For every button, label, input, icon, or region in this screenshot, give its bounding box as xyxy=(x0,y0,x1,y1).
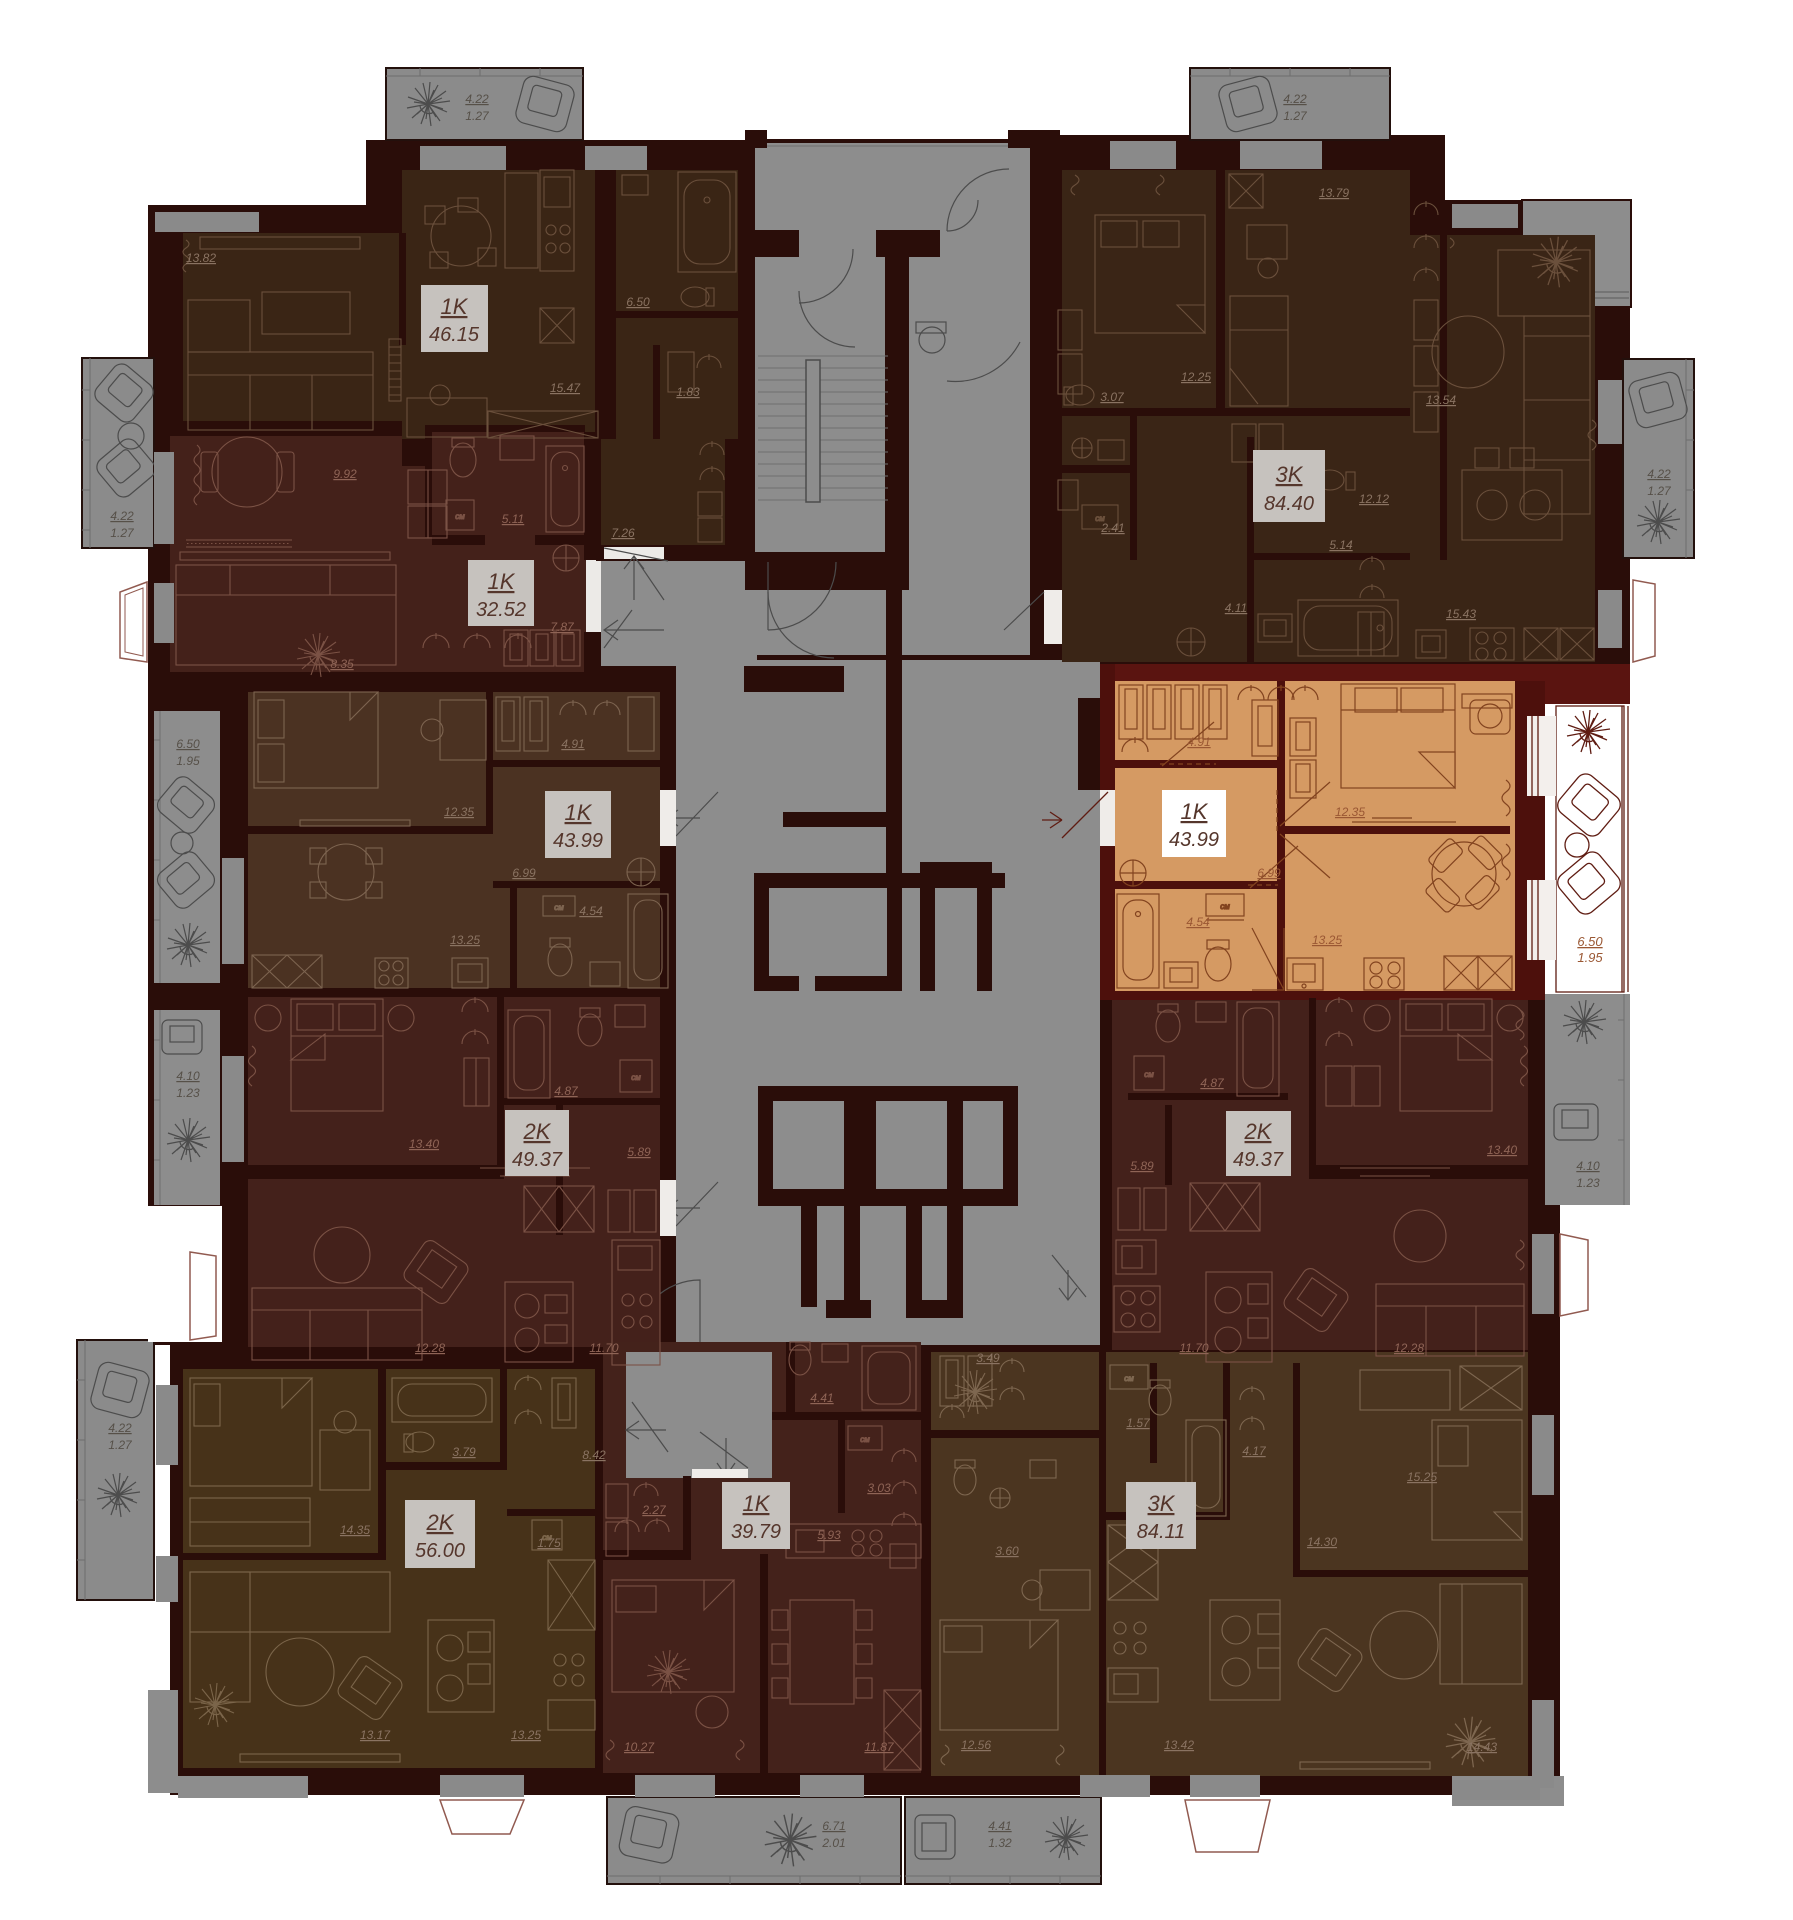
svg-text:1.27: 1.27 xyxy=(108,1438,133,1452)
svg-text:8.42: 8.42 xyxy=(582,1448,606,1462)
svg-text:3.60: 3.60 xyxy=(995,1544,1019,1558)
svg-text:1K: 1K xyxy=(1181,799,1209,824)
svg-text:13.25: 13.25 xyxy=(511,1728,541,1742)
svg-text:13.25: 13.25 xyxy=(1312,933,1342,947)
svg-text:32.52: 32.52 xyxy=(476,599,526,621)
svg-text:4.10: 4.10 xyxy=(176,1069,200,1083)
svg-text:см: см xyxy=(860,1435,870,1444)
svg-text:3.03: 3.03 xyxy=(867,1481,891,1495)
svg-text:6.99: 6.99 xyxy=(512,866,536,880)
svg-text:11.70: 11.70 xyxy=(1179,1341,1208,1355)
svg-text:2.01: 2.01 xyxy=(821,1836,845,1850)
svg-text:4.10: 4.10 xyxy=(1576,1159,1600,1173)
svg-text:14.35: 14.35 xyxy=(340,1523,370,1537)
svg-text:см: см xyxy=(554,903,564,912)
svg-text:7.87: 7.87 xyxy=(550,620,575,634)
svg-text:49.37: 49.37 xyxy=(1233,1149,1284,1171)
svg-text:1K: 1K xyxy=(441,294,469,319)
svg-text:11.70: 11.70 xyxy=(589,1341,618,1355)
svg-text:84.11: 84.11 xyxy=(1137,1521,1186,1543)
svg-text:12.28: 12.28 xyxy=(415,1341,445,1355)
svg-text:1.27: 1.27 xyxy=(465,109,490,123)
svg-text:15.43: 15.43 xyxy=(1446,607,1476,621)
svg-text:13.17: 13.17 xyxy=(360,1728,391,1742)
svg-text:12.25: 12.25 xyxy=(1181,370,1211,384)
svg-text:4.17: 4.17 xyxy=(1242,1444,1267,1458)
svg-text:1.23: 1.23 xyxy=(1576,1176,1600,1190)
svg-text:2.41: 2.41 xyxy=(1100,521,1124,535)
svg-text:6.99: 6.99 xyxy=(1257,866,1281,880)
svg-text:46.15: 46.15 xyxy=(429,324,480,346)
svg-text:6.71: 6.71 xyxy=(822,1819,845,1833)
svg-text:43.99: 43.99 xyxy=(1169,829,1219,851)
svg-text:5.89: 5.89 xyxy=(1130,1159,1154,1173)
svg-text:13.54: 13.54 xyxy=(1426,393,1456,407)
svg-text:2K: 2K xyxy=(426,1510,455,1535)
svg-text:12.35: 12.35 xyxy=(1335,805,1365,819)
svg-text:1.95: 1.95 xyxy=(176,754,200,768)
svg-text:4.22: 4.22 xyxy=(1647,467,1671,481)
svg-text:5.93: 5.93 xyxy=(817,1528,841,1542)
svg-text:1.75: 1.75 xyxy=(537,1536,561,1550)
svg-text:6.50: 6.50 xyxy=(626,295,650,309)
svg-text:6.50: 6.50 xyxy=(1577,934,1603,949)
svg-text:1.27: 1.27 xyxy=(110,526,135,540)
svg-text:13.82: 13.82 xyxy=(186,251,216,265)
svg-text:12.35: 12.35 xyxy=(444,805,474,819)
svg-text:3.79: 3.79 xyxy=(452,1445,476,1459)
svg-text:см: см xyxy=(1220,902,1230,911)
svg-text:14.43: 14.43 xyxy=(1467,1740,1497,1754)
svg-text:8.35: 8.35 xyxy=(330,657,354,671)
svg-text:4.54: 4.54 xyxy=(579,904,603,918)
svg-text:84.40: 84.40 xyxy=(1264,493,1314,515)
svg-text:2K: 2K xyxy=(523,1119,552,1144)
svg-text:1.83: 1.83 xyxy=(676,385,700,399)
svg-text:1.23: 1.23 xyxy=(176,1086,200,1100)
svg-text:14.30: 14.30 xyxy=(1307,1535,1337,1549)
svg-text:1K: 1K xyxy=(488,569,516,594)
svg-text:1.27: 1.27 xyxy=(1647,484,1672,498)
svg-text:4.41: 4.41 xyxy=(810,1391,833,1405)
svg-text:4.22: 4.22 xyxy=(465,92,489,106)
svg-text:13.40: 13.40 xyxy=(409,1137,439,1151)
svg-text:4.11: 4.11 xyxy=(1225,601,1247,615)
svg-text:12.28: 12.28 xyxy=(1394,1341,1424,1355)
svg-text:4.54: 4.54 xyxy=(1186,915,1210,929)
svg-text:11.87: 11.87 xyxy=(864,1740,894,1754)
svg-text:13.79: 13.79 xyxy=(1319,186,1349,200)
svg-text:4.41: 4.41 xyxy=(988,1819,1011,1833)
svg-text:6.50: 6.50 xyxy=(176,737,200,751)
svg-text:39.79: 39.79 xyxy=(731,1521,781,1543)
svg-text:13.40: 13.40 xyxy=(1487,1143,1517,1157)
svg-text:3K: 3K xyxy=(1276,462,1304,487)
svg-text:5.11: 5.11 xyxy=(502,512,524,526)
svg-text:56.00: 56.00 xyxy=(415,1540,465,1562)
svg-text:3.07: 3.07 xyxy=(1100,390,1125,404)
svg-text:1K: 1K xyxy=(565,800,593,825)
svg-text:4.91: 4.91 xyxy=(561,737,584,751)
svg-text:3.49: 3.49 xyxy=(976,1351,1000,1365)
svg-text:1K: 1K xyxy=(743,1491,771,1516)
svg-text:5.14: 5.14 xyxy=(1329,538,1353,552)
svg-text:1.27: 1.27 xyxy=(1283,109,1308,123)
svg-text:1.32: 1.32 xyxy=(988,1836,1012,1850)
svg-text:13.42: 13.42 xyxy=(1164,1738,1194,1752)
svg-text:49.37: 49.37 xyxy=(512,1149,563,1171)
svg-text:7.26: 7.26 xyxy=(611,526,635,540)
svg-text:3K: 3K xyxy=(1148,1491,1176,1516)
svg-text:4.91: 4.91 xyxy=(1187,735,1210,749)
svg-text:43.99: 43.99 xyxy=(553,830,603,852)
svg-text:2K: 2K xyxy=(1244,1119,1273,1144)
svg-text:12.56: 12.56 xyxy=(961,1738,991,1752)
svg-text:4.87: 4.87 xyxy=(554,1084,579,1098)
svg-text:см: см xyxy=(1124,1374,1134,1383)
svg-text:2.27: 2.27 xyxy=(641,1503,667,1517)
svg-text:см: см xyxy=(631,1073,641,1082)
svg-text:9.92: 9.92 xyxy=(333,467,357,481)
svg-text:4.22: 4.22 xyxy=(110,509,134,523)
svg-text:12.12: 12.12 xyxy=(1359,492,1389,506)
svg-text:4.87: 4.87 xyxy=(1200,1076,1225,1090)
svg-text:1.95: 1.95 xyxy=(1577,950,1603,965)
svg-text:см: см xyxy=(455,512,465,521)
svg-text:5.89: 5.89 xyxy=(627,1145,651,1159)
svg-text:1.57: 1.57 xyxy=(1126,1416,1151,1430)
svg-text:15.47: 15.47 xyxy=(550,381,581,395)
svg-text:см: см xyxy=(1144,1070,1154,1079)
svg-text:4.22: 4.22 xyxy=(1283,92,1307,106)
svg-text:13.25: 13.25 xyxy=(450,933,480,947)
svg-text:10.27: 10.27 xyxy=(624,1740,655,1754)
svg-text:15.25: 15.25 xyxy=(1407,1470,1437,1484)
svg-text:4.22: 4.22 xyxy=(108,1421,132,1435)
